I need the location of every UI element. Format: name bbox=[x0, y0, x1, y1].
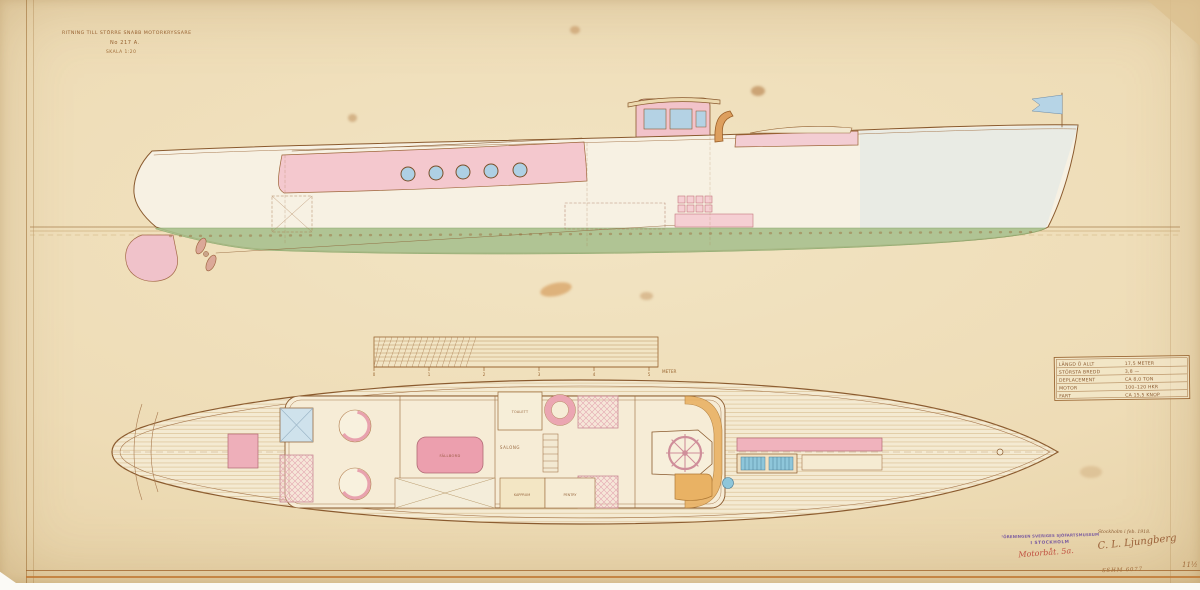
profile-view bbox=[30, 85, 1180, 295]
porthole bbox=[456, 165, 470, 179]
rudder bbox=[126, 235, 178, 281]
stain bbox=[1080, 466, 1102, 478]
toilet-label: TOALETT bbox=[511, 410, 529, 414]
pentry-label: PENTRY bbox=[563, 493, 577, 497]
vent-cowl bbox=[723, 478, 734, 489]
porthole bbox=[401, 167, 415, 181]
stern-flag bbox=[1032, 95, 1062, 114]
companionway-ladder bbox=[543, 434, 558, 472]
pentry-room: PENTRY bbox=[545, 478, 595, 508]
kapprum-room: KAPPRUM bbox=[500, 478, 545, 508]
deck-plan-view: FÄLLBORD SALONG TOALETT bbox=[100, 370, 1080, 535]
sofa-berth bbox=[395, 478, 495, 508]
wheelhouse-window bbox=[696, 111, 706, 127]
table-label: FÄLLBORD bbox=[439, 453, 460, 458]
spec-value: 100–120 HKR bbox=[1125, 384, 1159, 390]
place-date: Stockholm i feb. 1918. bbox=[1098, 529, 1151, 535]
engine-skylight bbox=[737, 454, 797, 473]
stamp-line2: I STOCKHOLM bbox=[1030, 539, 1069, 546]
svg-text:SSHM 6077: SSHM 6077 bbox=[1102, 567, 1143, 574]
wheelhouse-window bbox=[644, 109, 666, 129]
sheet-number: 11½ bbox=[1180, 556, 1200, 572]
bottom-border-line bbox=[26, 570, 1200, 578]
signature-block: Stockholm i feb. 1918. C. L. Ljungberg bbox=[1090, 524, 1198, 558]
forward-berth bbox=[228, 434, 258, 468]
hull-bottom-green bbox=[156, 228, 1046, 254]
title-line3: SKALA 1:20 bbox=[106, 49, 136, 55]
signature-name: C. L. Ljungberg bbox=[1097, 533, 1177, 552]
spec-value: CA 8,0 TON bbox=[1125, 376, 1154, 382]
skylight-grating bbox=[578, 396, 618, 428]
deck-hatch-outline bbox=[802, 455, 882, 470]
spec-value: 17,5 METER bbox=[1125, 361, 1155, 367]
spec-value: CA 15,5 KNOP bbox=[1125, 392, 1160, 398]
mooring-bitt bbox=[997, 449, 1003, 455]
spec-value: 3,8 — bbox=[1125, 369, 1140, 375]
wheelhouse-window bbox=[670, 109, 692, 129]
museum-stamp: FÖRENINGEN SVERIGES SJÖFARTSMUSEUM I STO… bbox=[1002, 529, 1103, 562]
cockpit-corner-seat bbox=[675, 474, 712, 500]
steering-wheel bbox=[666, 434, 704, 472]
porthole bbox=[513, 163, 527, 177]
catalog-number: SSHM 6077 bbox=[1098, 560, 1169, 578]
basin bbox=[339, 410, 371, 442]
scanned-boat-drawing: RITNING TILL STÖRRE SNABB MOTORKRYSSARE … bbox=[0, 0, 1200, 590]
basin bbox=[339, 468, 371, 500]
porthole bbox=[429, 166, 443, 180]
class-note: Motorbåt. 5a. bbox=[1017, 546, 1074, 559]
salon-label: SALONG bbox=[500, 445, 520, 450]
wheelhouse bbox=[628, 98, 720, 137]
svg-text:11½: 11½ bbox=[1182, 561, 1198, 569]
title-line2: No 217 A. bbox=[110, 40, 140, 46]
toilet-room: TOALETT bbox=[498, 392, 542, 430]
bow-hull-tint bbox=[860, 125, 1078, 234]
title-block: RITNING TILL STÖRRE SNABB MOTORKRYSSARE … bbox=[58, 25, 228, 59]
stamp-line1: FÖRENINGEN SVERIGES SJÖFARTSMUSEUM bbox=[1002, 532, 1099, 540]
porthole bbox=[484, 164, 498, 178]
kapprum-label: KAPPRUM bbox=[514, 493, 530, 497]
title-line1: RITNING TILL STÖRRE SNABB MOTORKRYSSARE bbox=[62, 29, 192, 36]
skylight bbox=[280, 408, 313, 442]
hatch-grating bbox=[280, 455, 313, 502]
stain bbox=[570, 26, 580, 34]
dinghy bbox=[750, 126, 852, 133]
deck-bench bbox=[737, 438, 882, 451]
